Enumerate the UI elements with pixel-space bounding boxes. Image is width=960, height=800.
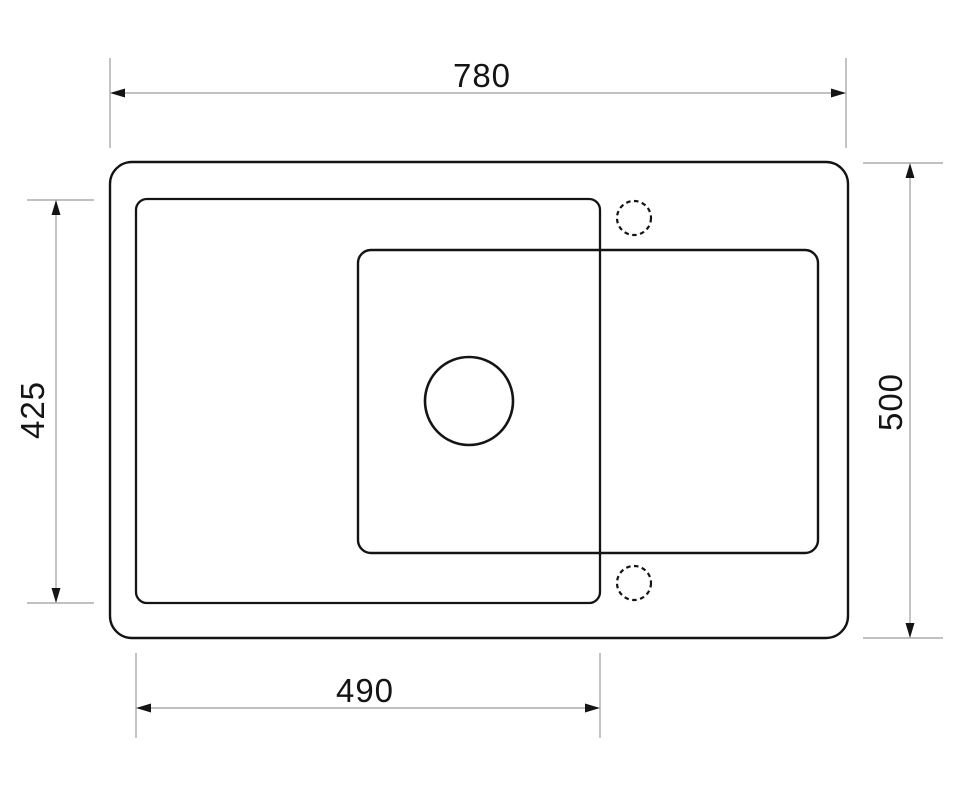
dimension-right-500: 500 (863, 163, 943, 638)
sink-dimension-diagram: 780 500 425 490 (0, 0, 960, 800)
faucet-hole-top-dashed-circle (617, 201, 651, 235)
sink-outer-rim (110, 162, 848, 638)
arrowhead-down (52, 588, 61, 603)
bowl-rect (358, 250, 818, 553)
arrowhead-right (585, 704, 600, 713)
arrowhead-down (906, 623, 915, 638)
sink-technical-drawing-page: 780 500 425 490 (0, 0, 960, 800)
sink-outline-group (110, 162, 848, 638)
arrowhead-left (110, 89, 125, 98)
arrowhead-right (831, 89, 846, 98)
dimension-label-right: 500 (872, 373, 909, 431)
arrowhead-up (906, 163, 915, 178)
drainer-area-rect (136, 199, 600, 603)
dimension-bottom-490: 490 (136, 653, 600, 738)
dimension-left-425: 425 (14, 200, 94, 603)
dimension-label-bottom: 490 (336, 672, 394, 709)
arrowhead-left (136, 704, 151, 713)
drain-hole-circle (425, 357, 513, 445)
dimension-top-780: 780 (110, 57, 846, 148)
dimension-label-left: 425 (14, 381, 51, 439)
arrowhead-up (52, 200, 61, 215)
faucet-hole-bottom-dashed-circle (617, 566, 651, 600)
dimension-label-top: 780 (453, 57, 511, 94)
